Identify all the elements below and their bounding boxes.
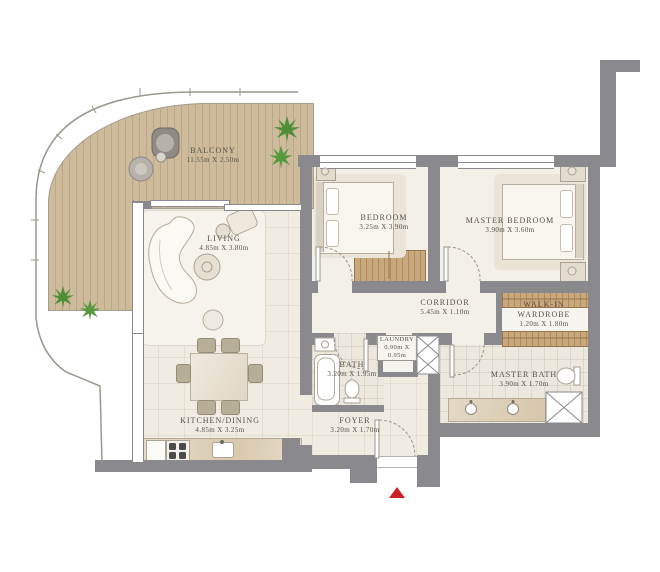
kitchen-column [282, 438, 300, 460]
bedroom-pillow [326, 188, 339, 215]
parapet-line-lower [36, 318, 102, 462]
walk-in-wardrobe-bottom [502, 331, 590, 347]
foyer-label: FOYER 3.20m X 1.70m [330, 416, 379, 435]
bedroom-window [320, 155, 416, 169]
dining-chair [248, 364, 263, 383]
master-nightstand [560, 262, 586, 282]
balcony-sliding-door [150, 200, 230, 207]
wall [600, 60, 616, 167]
wall [312, 281, 318, 293]
wall [412, 333, 452, 345]
fridge [146, 440, 166, 461]
laundry-label: LAUNDRY 0.90m X 0.95m [377, 335, 417, 361]
balcony-sliding-door [224, 204, 302, 211]
dining-chair [221, 400, 240, 415]
wall [428, 374, 440, 455]
master-bedroom-label: MASTER BEDROOM 3.90m X 3.60m [466, 216, 554, 235]
kitchen-sink [212, 442, 234, 458]
wall [417, 455, 440, 487]
walk-in-wardrobe-label: WALK-IN WARDROBE 1.20m X 1.80m [518, 300, 571, 329]
corridor-label: CORRIDOR 5.45m X 1.10m [420, 298, 469, 317]
bedroom-headboard [316, 182, 324, 252]
dining-chair [221, 338, 240, 353]
entrance-arrow-icon [389, 487, 405, 498]
master-bedroom-window [458, 155, 554, 169]
stove [166, 440, 190, 461]
master-bath-label: MASTER BATH 3.90m X 1.70m [491, 370, 557, 389]
master-pillow [560, 190, 573, 218]
living-west-window [132, 203, 144, 462]
balcony-deck [48, 103, 314, 209]
wall [95, 460, 312, 472]
wall [588, 155, 600, 437]
dining-table [190, 353, 248, 401]
master-headboard [575, 184, 583, 258]
dining-chair [197, 338, 216, 353]
wall [312, 405, 384, 412]
wall [378, 372, 418, 377]
master-vanity [448, 398, 546, 422]
wall [312, 333, 334, 345]
dining-chair [197, 400, 216, 415]
wall [600, 60, 640, 72]
wall [496, 292, 502, 345]
bath-label: BATH 3.20m X 1.95m [327, 360, 376, 379]
master-pillow [560, 224, 573, 252]
balcony-deck-side [48, 200, 134, 311]
wall [300, 155, 312, 395]
wall [440, 423, 600, 437]
wall [352, 281, 446, 293]
kitchen-dining-label: KITCHEN/DINING 4.85m X 3.25m [180, 416, 260, 435]
living-label: LIVING 4.85m X 3.80m [199, 234, 248, 253]
wall [428, 167, 440, 281]
entrance-threshold [377, 456, 417, 468]
dining-chair [176, 364, 191, 383]
floor-plan: BALCONY 11.55m X 2.50m LIVING 4.85m X 3.… [0, 0, 660, 572]
bedroom-pillow [326, 220, 339, 247]
bedroom-label: BEDROOM 3.25m X 3.90m [359, 213, 408, 232]
wall [350, 462, 377, 483]
balcony-label: BALCONY 11.55m X 2.50m [187, 146, 240, 165]
